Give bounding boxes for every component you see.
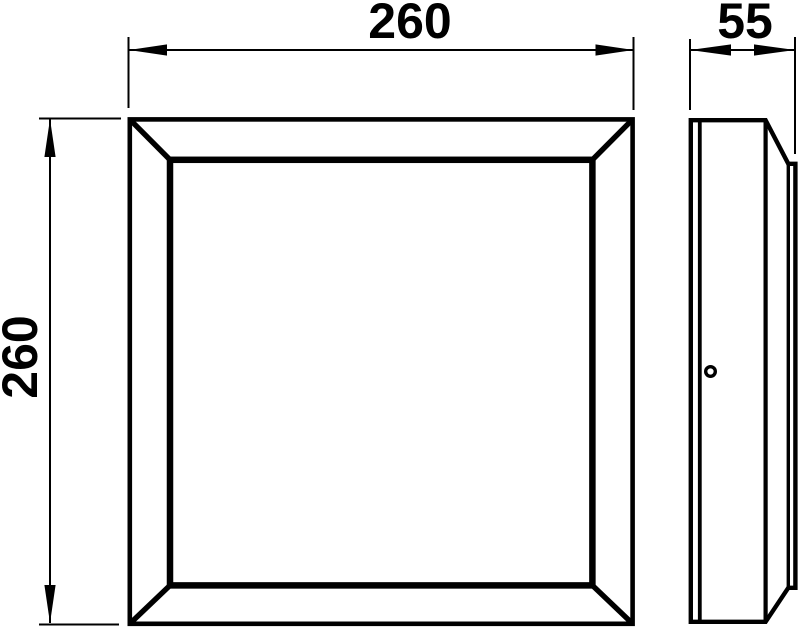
width-arrowhead-left: [129, 44, 167, 55]
front-inner-panel: [170, 160, 592, 586]
bevel-line-bottom-left: [131, 584, 171, 622]
width-dimension-label: 260: [368, 0, 451, 49]
height-arrowhead-bottom: [44, 585, 55, 623]
height-dimension: 260: [0, 119, 121, 625]
technical-drawing: 260 260 55: [0, 0, 800, 628]
front-view: [130, 119, 633, 623]
height-arrowhead-top: [44, 119, 55, 157]
front-outer-frame: [130, 119, 633, 623]
depth-dimension-label: 55: [717, 0, 773, 49]
width-arrowhead-right: [596, 44, 634, 55]
bevel-line-bottom-right: [591, 584, 631, 622]
height-dimension-label: 260: [0, 315, 48, 398]
side-view: [691, 120, 796, 622]
depth-dimension: 55: [690, 0, 795, 154]
bevel-line-top-right: [591, 121, 631, 161]
screw-hole: [706, 367, 716, 377]
width-dimension: 260: [129, 0, 634, 110]
bevel-line-top-left: [131, 121, 171, 161]
